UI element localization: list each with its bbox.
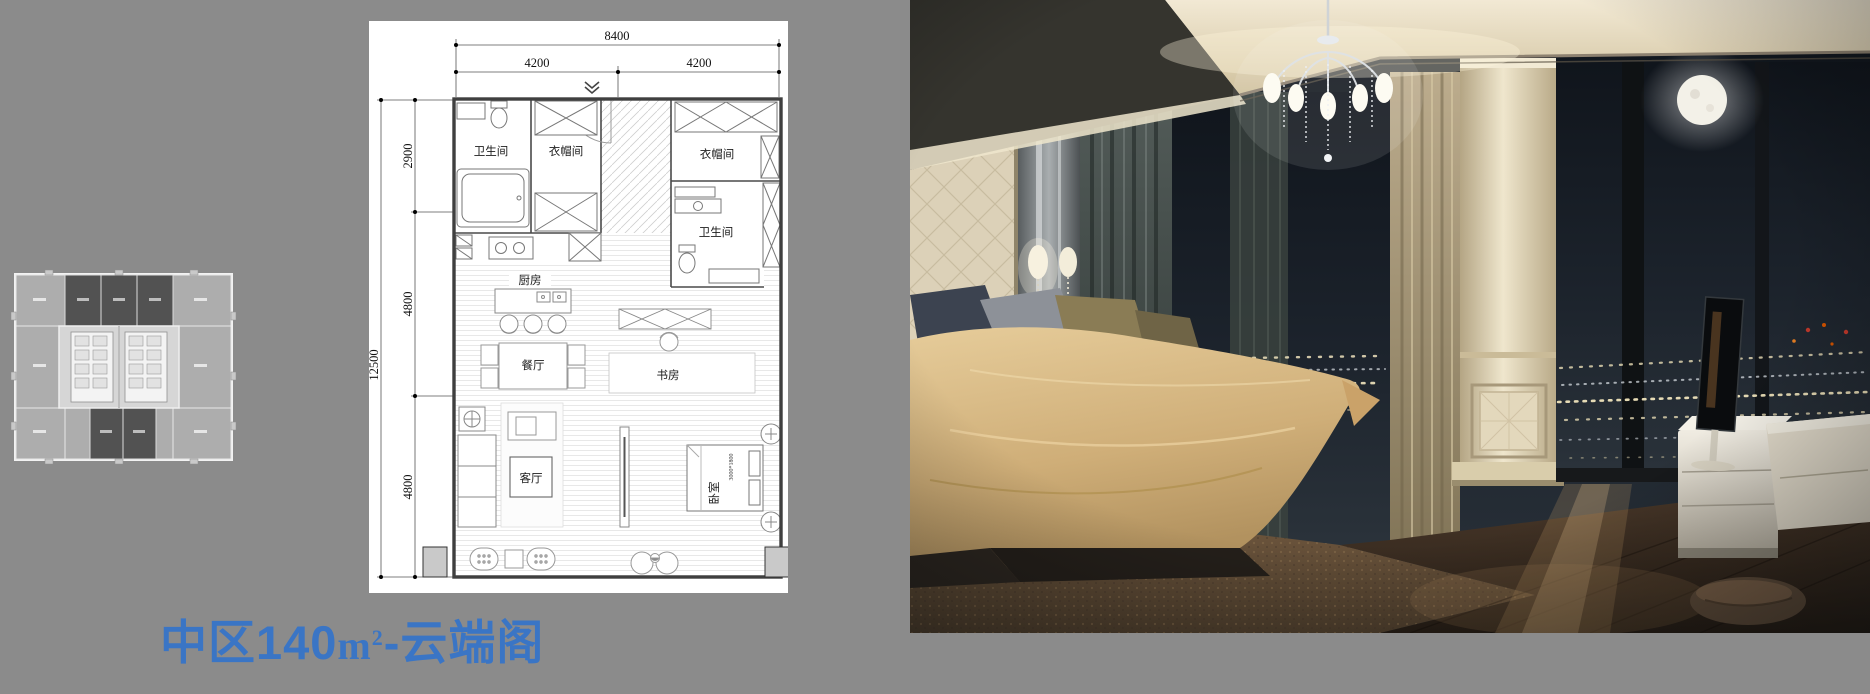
bedroom-photo [910,0,1870,633]
dim-depth-mid: 4800 [401,292,415,317]
dim-overall-width: 8400 [605,29,630,43]
study-desk [609,353,755,393]
room-label-study: 书房 [657,369,680,382]
living-side-table [459,407,485,431]
room-label-living: 客厅 [520,471,543,485]
tv-panel [620,427,629,527]
room-label-kitchen: 厨房 [519,274,542,287]
dim-overall-depth: 12500 [369,349,381,380]
room-label-dining: 餐厅 [522,358,545,372]
room-label-bathroom-1: 卫生间 [474,144,509,158]
study-chair [660,332,678,351]
slide: 8400 4200 4200 12500 2900 4800 4800 [0,0,1870,694]
room-label-bedroom: 卧室 [707,482,721,505]
floor-plan: 8400 4200 4200 12500 2900 4800 4800 [369,21,788,593]
title-prefix: 中区140 [160,616,337,669]
dim-depth-top: 2900 [401,144,415,169]
photo-vignette [910,0,1870,633]
hall-cabinet [619,309,711,329]
dim-bay-right: 4200 [687,56,712,70]
key-plan [5,262,242,472]
title-area-unit: m2 [337,623,383,668]
living-sofa [458,435,496,527]
page-title: 中区140m2-云端阁 [160,604,544,673]
bed-size-label: 3000*1800 [729,454,735,481]
key-plan-core [59,326,179,408]
bed [687,445,763,511]
dim-bay-left: 4200 [525,56,550,70]
living-coffee-table [508,412,556,440]
kitchen-island [495,289,571,333]
room-label-closet-1: 衣帽间 [549,144,584,158]
room-label-bathroom-2: 卫生间 [699,225,734,239]
title-suffix: -云端阁 [384,616,545,669]
dim-depth-bottom: 4800 [401,475,415,500]
room-label-closet-2: 衣帽间 [700,147,735,161]
